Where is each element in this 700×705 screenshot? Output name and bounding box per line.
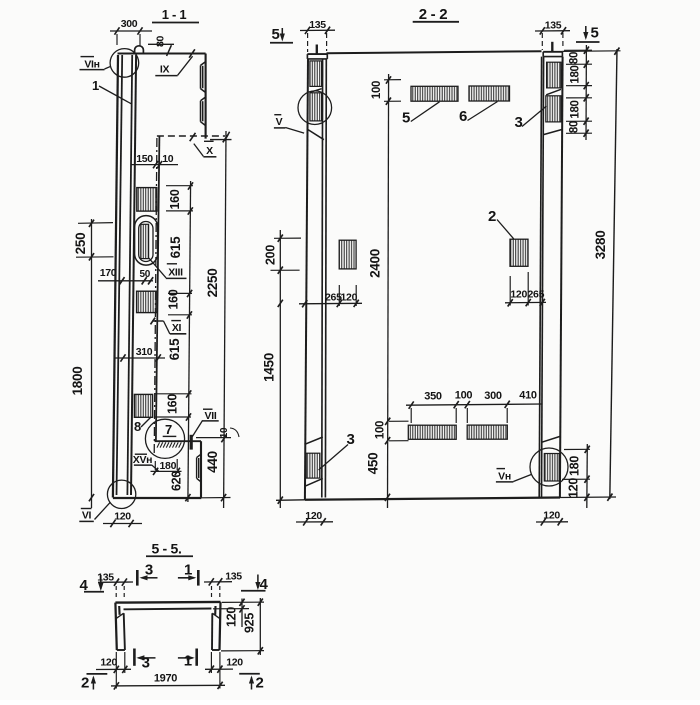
svg-text:300: 300 [121, 18, 138, 30]
svg-text:3: 3 [142, 655, 150, 672]
svg-text:2: 2 [255, 675, 263, 692]
svg-text:120: 120 [510, 289, 527, 301]
svg-text:1: 1 [92, 78, 99, 93]
svg-text:5 - 5.: 5 - 5. [151, 541, 181, 557]
svg-text:2250: 2250 [205, 269, 220, 298]
svg-text:3280: 3280 [593, 231, 608, 260]
svg-text:160: 160 [166, 394, 180, 414]
svg-text:160: 160 [167, 289, 181, 309]
svg-text:3: 3 [145, 562, 153, 579]
svg-text:440: 440 [205, 451, 220, 473]
svg-text:615: 615 [167, 338, 182, 360]
svg-text:5: 5 [271, 26, 279, 43]
svg-text:1: 1 [184, 653, 192, 670]
svg-text:X: X [206, 145, 213, 157]
svg-text:350: 350 [424, 391, 442, 403]
svg-text:6: 6 [459, 108, 467, 125]
svg-text:615: 615 [168, 236, 183, 258]
svg-text:200: 200 [264, 245, 278, 265]
svg-text:170: 170 [100, 267, 117, 279]
svg-text:1970: 1970 [154, 673, 177, 685]
svg-text:2400: 2400 [368, 249, 383, 278]
svg-text:180: 180 [568, 456, 582, 476]
svg-text:1: 1 [184, 562, 192, 579]
svg-text:135: 135 [545, 20, 562, 32]
svg-text:250: 250 [73, 233, 88, 255]
svg-text:5: 5 [590, 25, 598, 42]
svg-text:Vн: Vн [498, 471, 511, 483]
svg-text:310: 310 [136, 346, 153, 358]
svg-text:100: 100 [375, 421, 387, 439]
svg-text:100: 100 [455, 390, 473, 402]
svg-text:3: 3 [514, 114, 522, 131]
svg-text:1800: 1800 [70, 367, 85, 396]
svg-text:7: 7 [165, 422, 172, 437]
svg-text:120: 120 [305, 510, 322, 522]
svg-text:2: 2 [81, 675, 89, 692]
svg-text:160: 160 [168, 189, 182, 209]
svg-text:80: 80 [569, 121, 581, 133]
svg-text:2 - 2: 2 - 2 [419, 6, 448, 23]
svg-text:120: 120 [340, 292, 357, 304]
svg-text:80: 80 [569, 52, 581, 64]
svg-text:150: 150 [136, 153, 153, 165]
svg-text:50: 50 [140, 269, 151, 280]
svg-text:IX: IX [160, 64, 170, 76]
svg-text:120: 120 [225, 607, 239, 627]
svg-text:180: 180 [570, 100, 582, 118]
svg-text:180: 180 [570, 65, 582, 83]
svg-text:XVн: XVн [133, 454, 152, 466]
svg-text:120: 120 [114, 511, 131, 523]
svg-text:450: 450 [366, 453, 381, 475]
svg-text:120: 120 [543, 510, 560, 522]
svg-text:135: 135 [225, 571, 242, 583]
svg-text:135: 135 [309, 19, 326, 31]
svg-text:VIн: VIн [84, 59, 99, 71]
svg-text:180: 180 [159, 460, 176, 472]
svg-text:1450: 1450 [262, 353, 277, 382]
svg-text:120: 120 [100, 657, 117, 669]
svg-text:8: 8 [134, 419, 141, 434]
svg-text:120: 120 [226, 657, 243, 669]
svg-text:120: 120 [567, 478, 581, 498]
svg-text:XI: XI [172, 322, 182, 334]
svg-text:V: V [276, 116, 283, 128]
svg-text:2: 2 [488, 208, 496, 225]
svg-text:410: 410 [519, 390, 537, 402]
svg-text:VI: VI [82, 510, 92, 522]
svg-text:300: 300 [484, 390, 502, 402]
svg-text:100: 100 [371, 81, 383, 99]
svg-text:XIII: XIII [168, 267, 183, 279]
svg-text:925: 925 [243, 613, 257, 633]
svg-text:5: 5 [402, 110, 410, 127]
svg-text:10: 10 [162, 153, 174, 165]
svg-text:265: 265 [527, 289, 544, 301]
svg-text:1 - 1: 1 - 1 [162, 7, 187, 22]
svg-text:80: 80 [155, 36, 167, 48]
